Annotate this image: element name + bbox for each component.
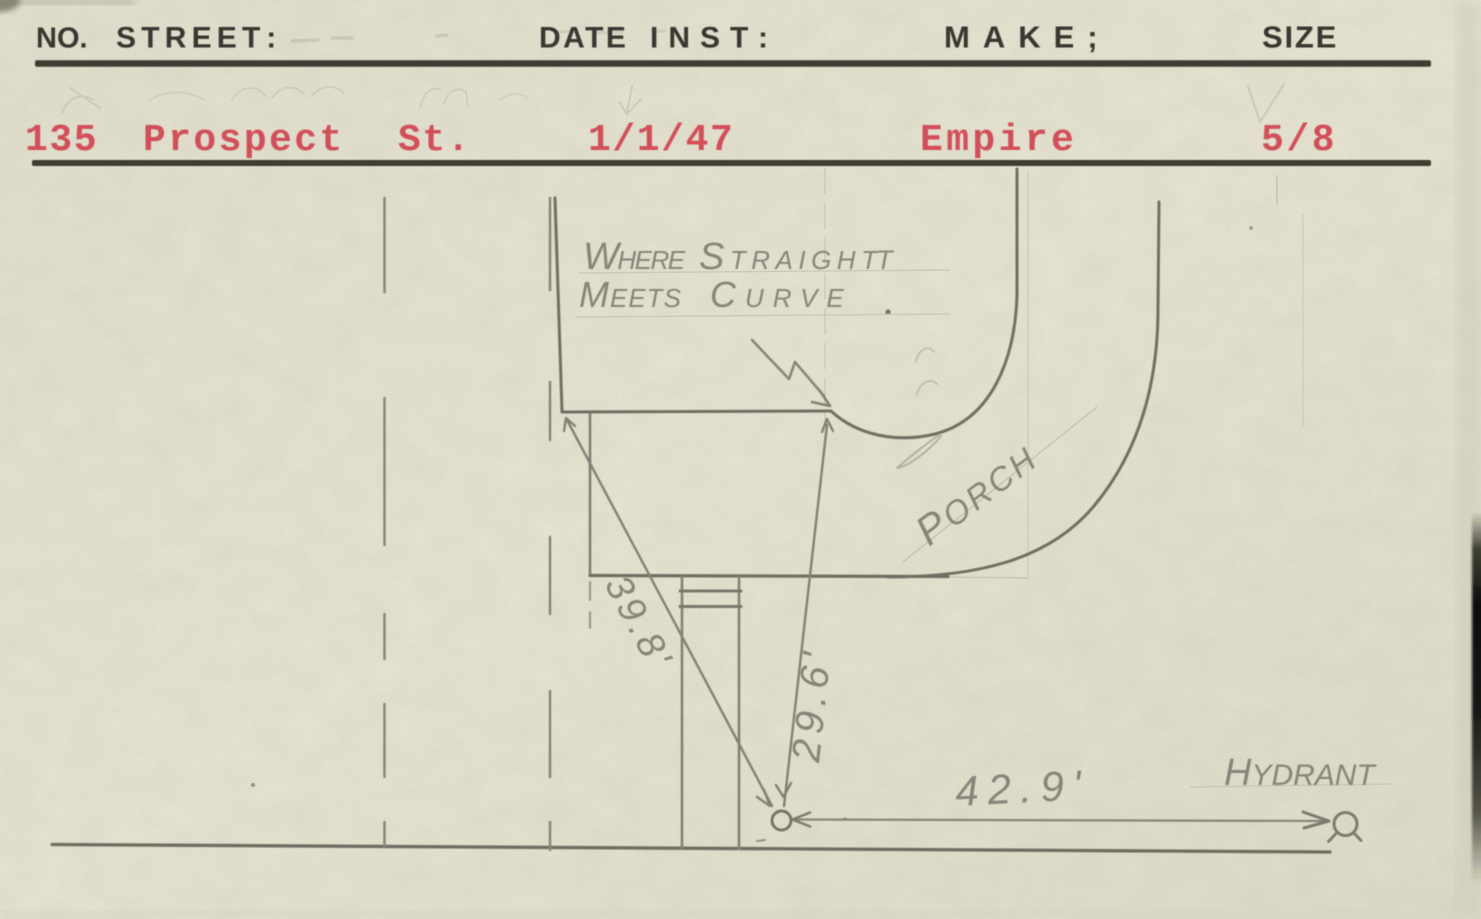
svg-text:42.9': 42.9' [954, 761, 1091, 815]
svg-text:SIZE: SIZE [1262, 20, 1338, 55]
svg-text:Prospect: Prospect [143, 119, 345, 162]
svg-text:DATE: DATE [539, 22, 628, 55]
svg-text:MAKE;: MAKE; [944, 20, 1111, 55]
svg-text:135: 135 [25, 119, 98, 162]
svg-text:NO.: NO. [36, 23, 88, 55]
svg-text:Empire: Empire [920, 119, 1077, 162]
svg-text:5/8: 5/8 [1261, 119, 1337, 162]
svg-text:St.: St. [398, 119, 471, 162]
svg-text:STREET:: STREET: [116, 22, 281, 55]
svg-text:INST:: INST: [650, 22, 778, 55]
svg-text:HYDRANT: HYDRANT [1224, 752, 1377, 794]
svg-text:T: T [876, 245, 895, 275]
svg-text:1/1/47: 1/1/47 [588, 119, 734, 162]
